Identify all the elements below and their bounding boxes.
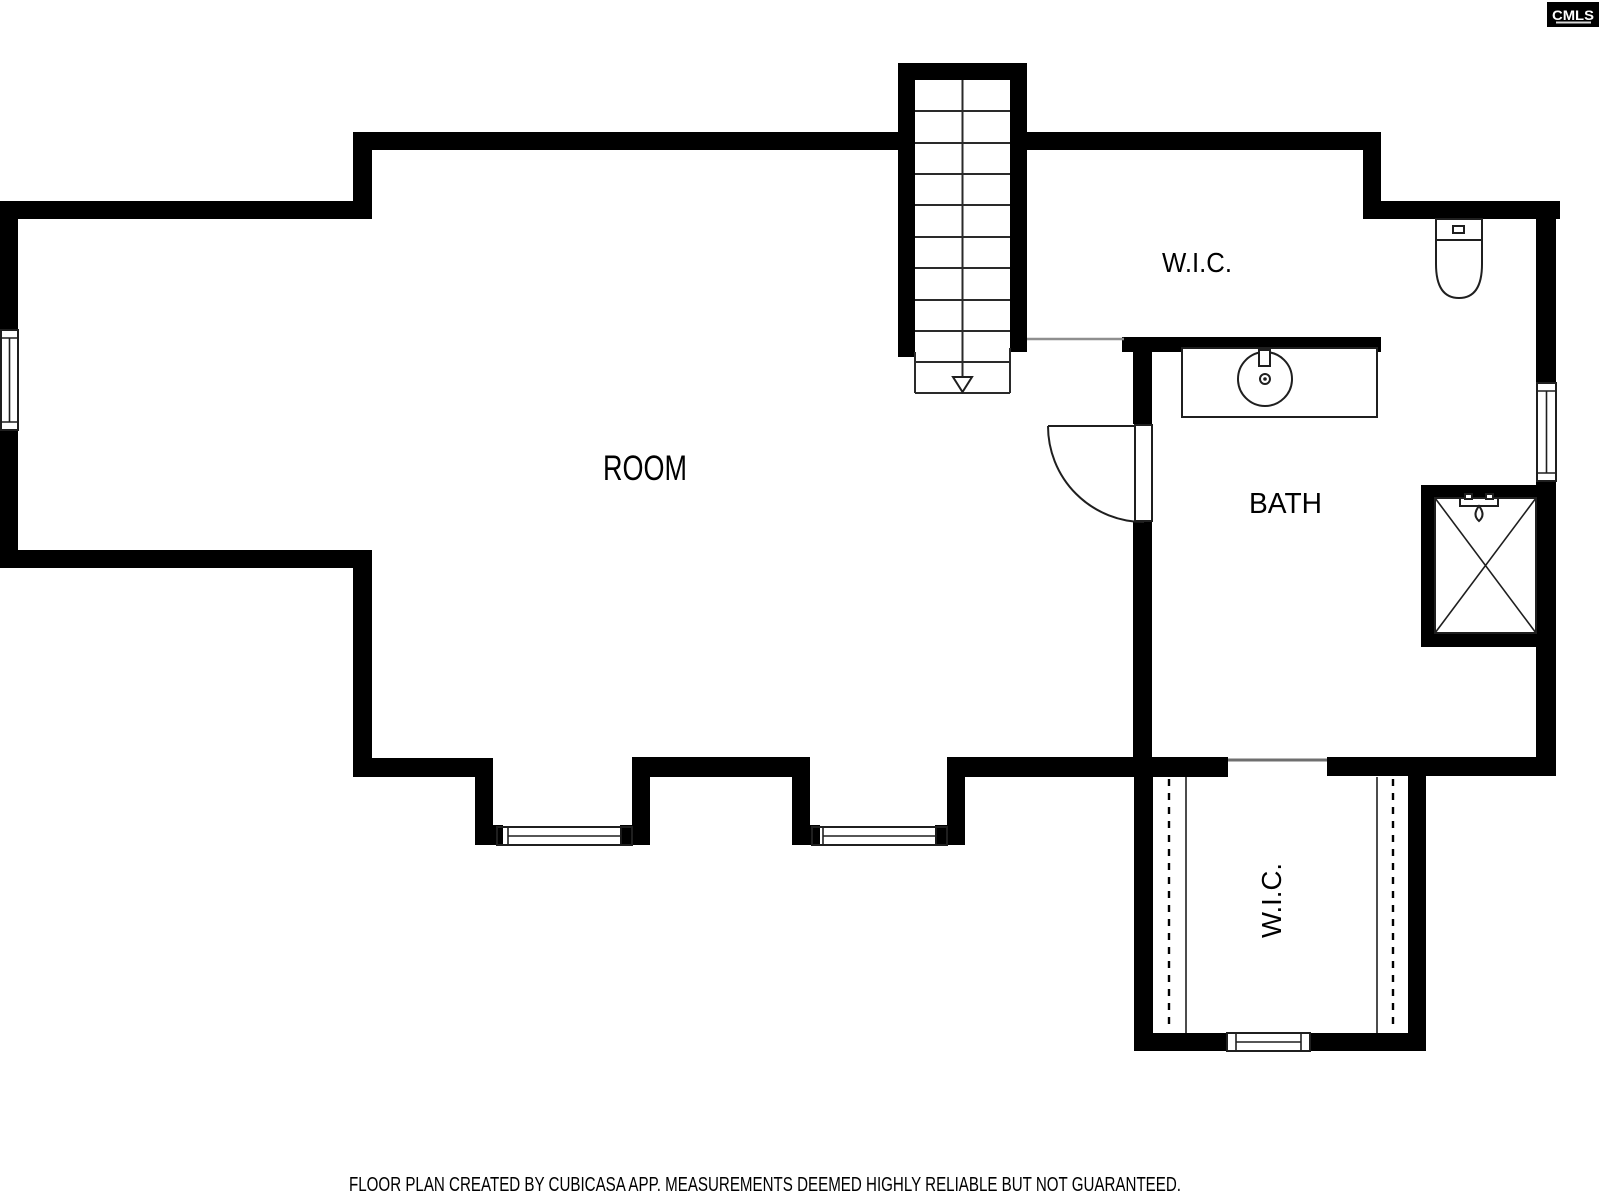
bath-door: [1048, 425, 1152, 522]
wall: [475, 758, 493, 845]
window-bay-1: [497, 827, 632, 845]
floor-plan-page: ROOM W.I.C. BATH W.I.C. FLOOR PLAN CREAT…: [0, 0, 1600, 1197]
room-label-room: ROOM: [603, 449, 687, 488]
wall: [898, 63, 1027, 80]
cmls-logo-text: CMLS: [1552, 7, 1594, 23]
wall: [1133, 521, 1152, 777]
wall: [792, 758, 810, 845]
wall: [1310, 1033, 1426, 1051]
room-label-wic-top: W.I.C.: [1162, 247, 1232, 278]
wall: [898, 63, 915, 357]
wall: [1327, 757, 1556, 776]
stairs-down-arrow-icon: [953, 377, 972, 392]
wall: [0, 550, 372, 568]
room-label-bath: BATH: [1249, 488, 1322, 520]
walls: [0, 63, 1560, 1051]
footer-disclaimer: FLOOR PLAN CREATED BY CUBICASA APP. MEAS…: [349, 1174, 1181, 1196]
shower-icon: [1435, 494, 1536, 633]
wall: [0, 201, 372, 219]
wall: [1134, 1033, 1227, 1051]
wall: [353, 550, 372, 777]
wall: [0, 201, 18, 330]
room-label-wic-bottom: W.I.C.: [1256, 863, 1287, 938]
cmls-logo: CMLS: [1547, 2, 1599, 27]
cmls-logo-subtext-line: [1556, 22, 1591, 24]
window-wic-bottom: [1227, 1033, 1310, 1051]
staircase: [915, 80, 1010, 393]
window-right: [1537, 383, 1556, 481]
wall: [1421, 485, 1537, 498]
wall: [1421, 485, 1435, 647]
wall: [1010, 132, 1381, 150]
wall: [1536, 481, 1556, 776]
wall: [632, 757, 810, 777]
wall: [1134, 757, 1153, 1051]
wall: [353, 132, 915, 150]
wall: [1421, 633, 1537, 647]
wall: [353, 758, 493, 777]
wall: [1010, 63, 1027, 352]
door-leaf: [1135, 425, 1152, 521]
wall: [1363, 201, 1560, 219]
window-bay-2: [812, 827, 947, 845]
wall: [947, 757, 1228, 777]
wall: [1408, 760, 1426, 1051]
wall: [1536, 201, 1556, 383]
sink-vanity-icon: [1182, 348, 1377, 417]
window-left: [1, 330, 18, 430]
wall: [1133, 337, 1152, 424]
wall: [0, 430, 18, 568]
toilet-icon: [1436, 219, 1482, 298]
floor-plan-canvas: ROOM W.I.C. BATH W.I.C. FLOOR PLAN CREAT…: [0, 0, 1600, 1197]
